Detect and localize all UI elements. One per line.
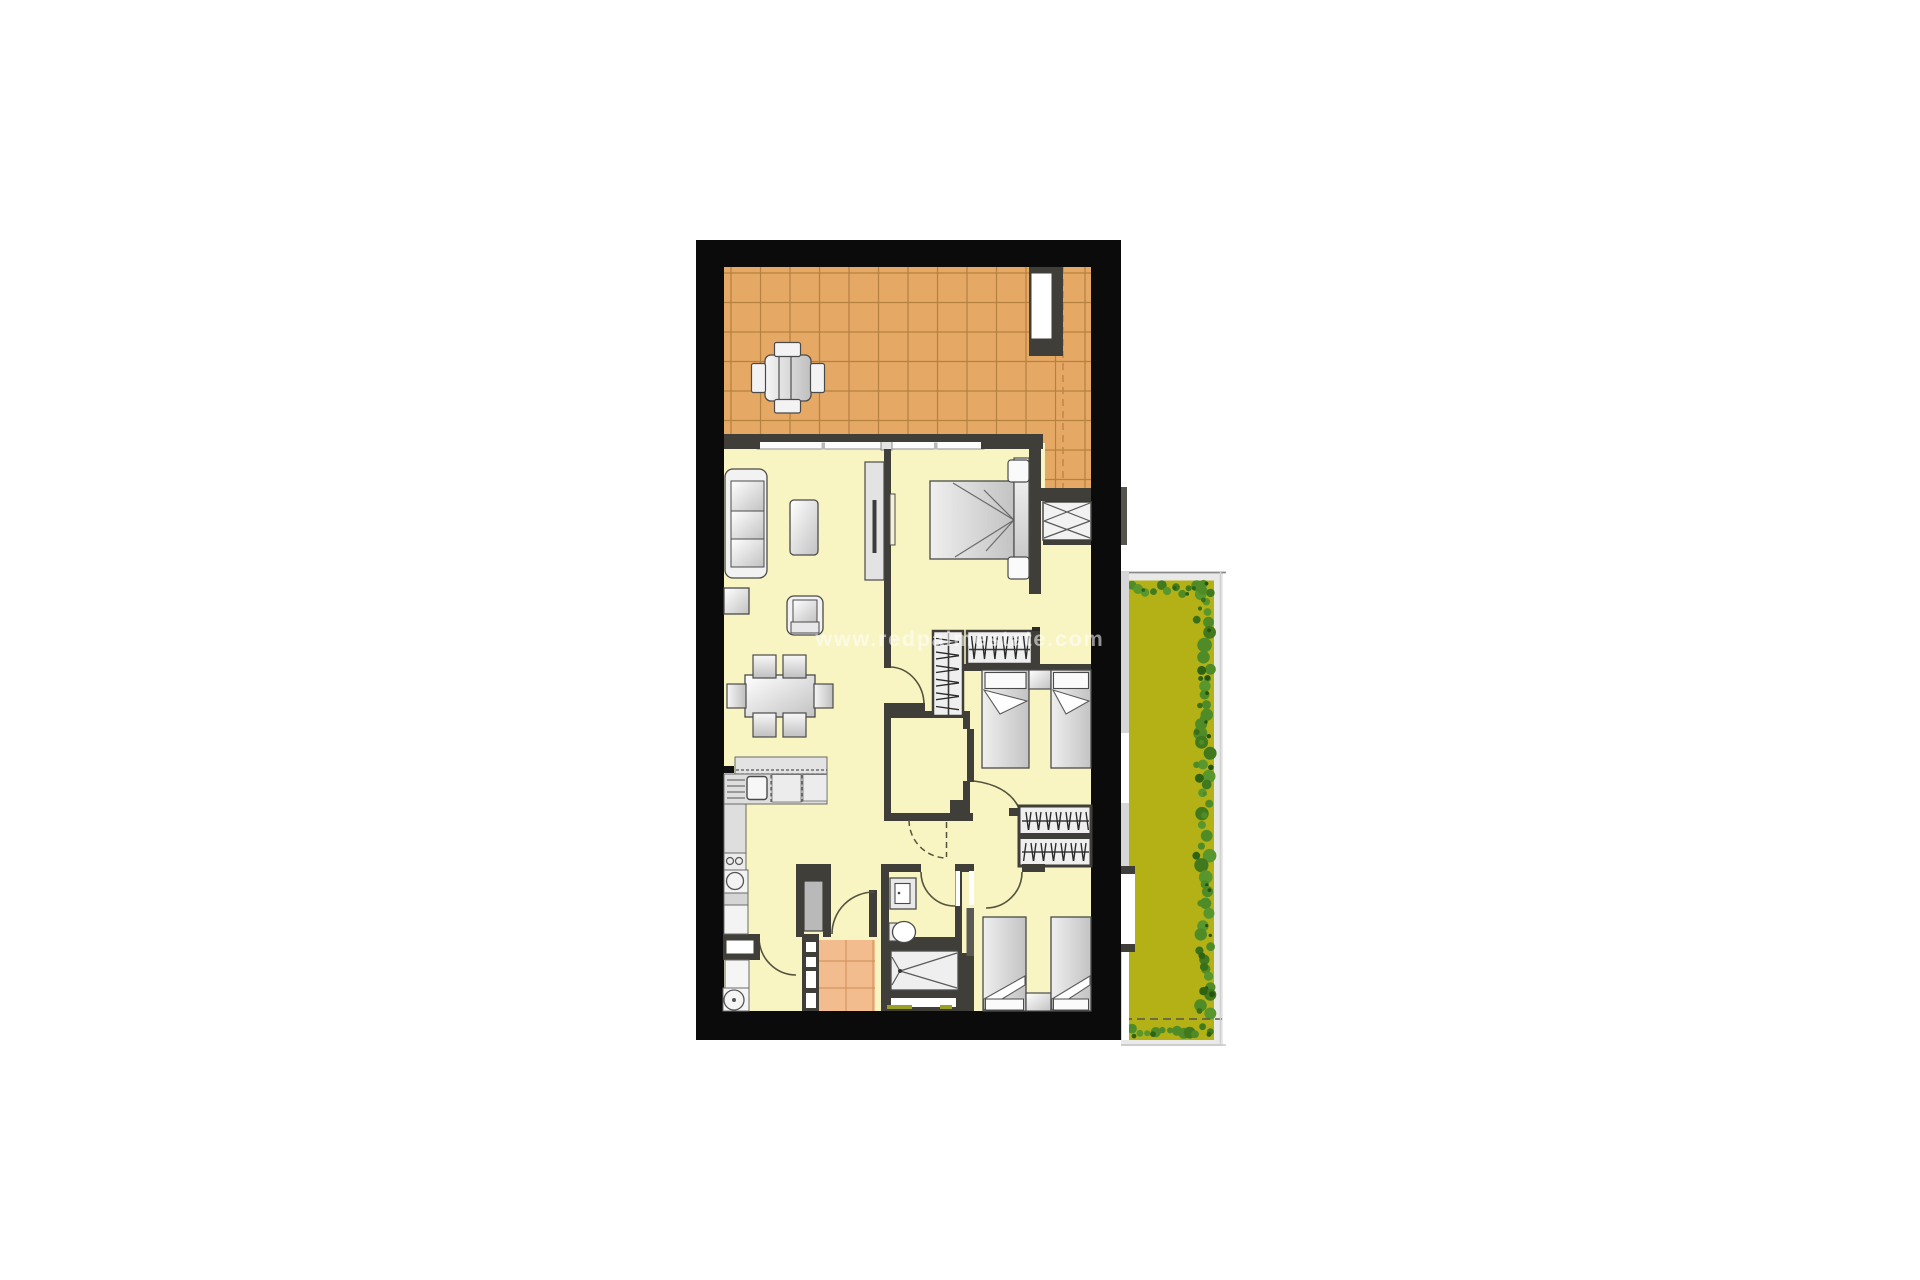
svg-text:www.redpalmestate.com: www.redpalmestate.com: [814, 627, 1104, 651]
